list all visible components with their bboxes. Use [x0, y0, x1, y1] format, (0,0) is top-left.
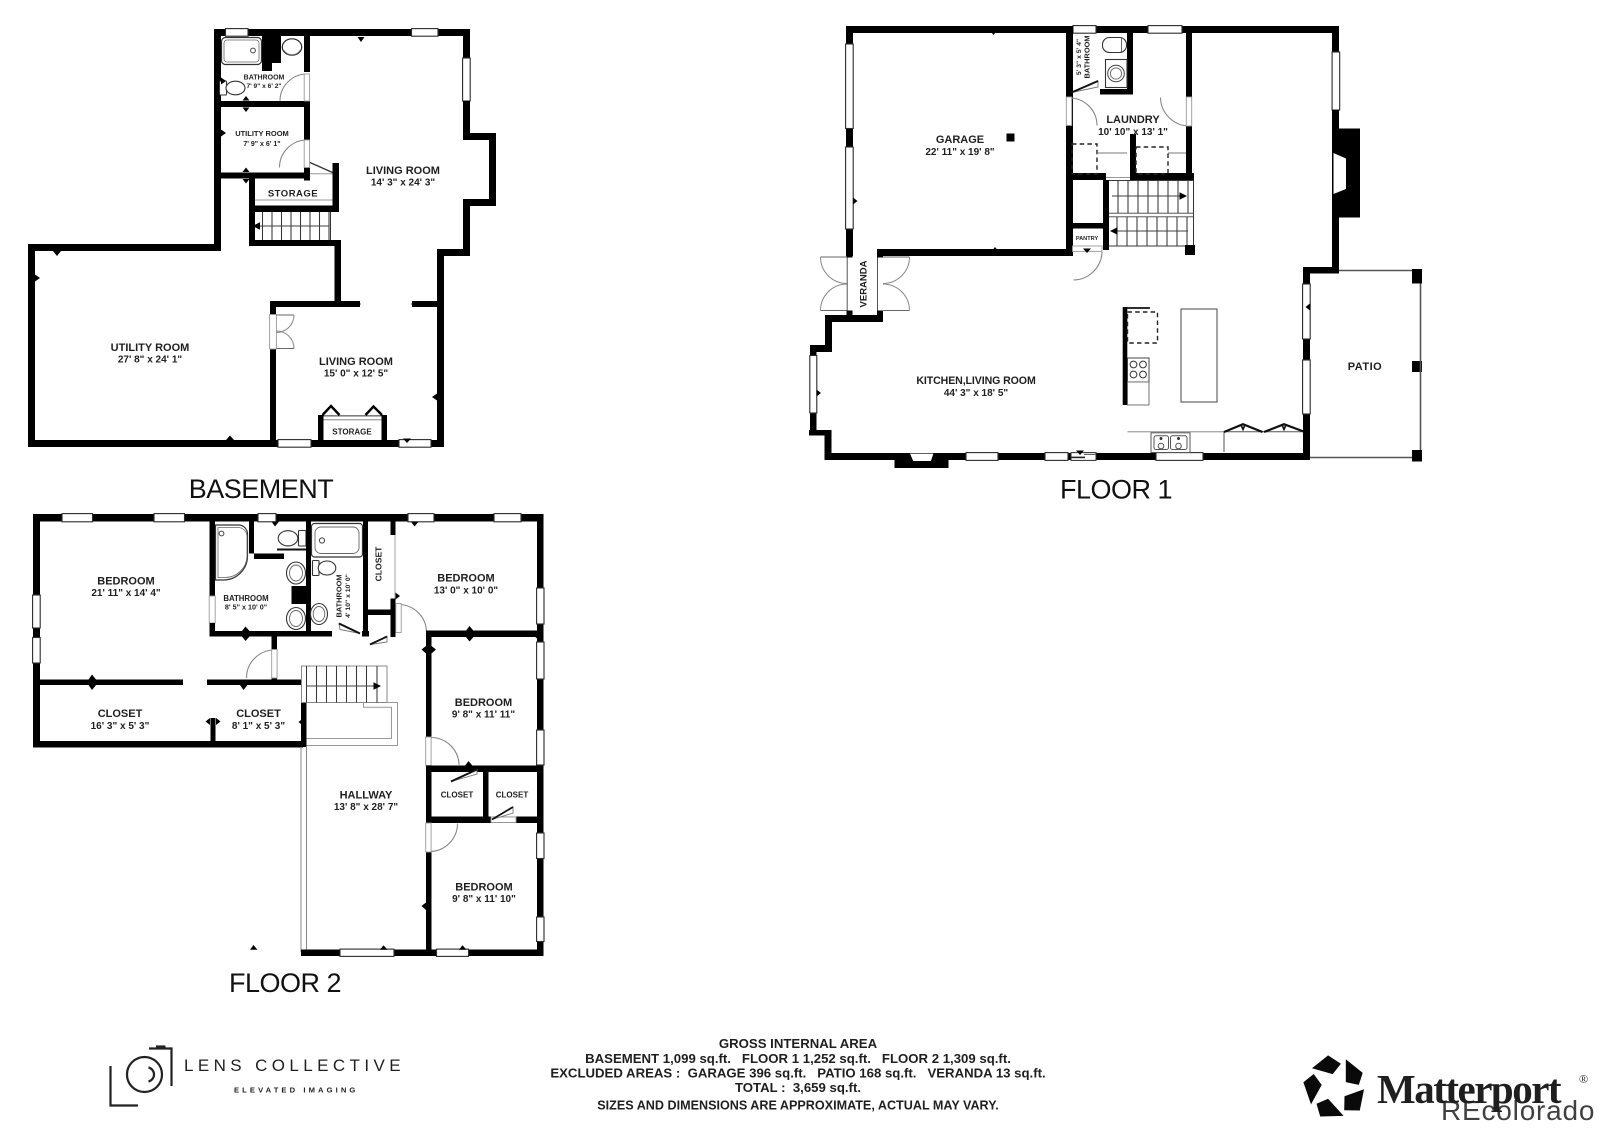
svg-text:8' 5" x 10' 0": 8' 5" x 10' 0" — [225, 603, 267, 612]
svg-text:GARAGE: GARAGE — [936, 134, 984, 146]
svg-text:21' 11" x 14' 4": 21' 11" x 14' 4" — [91, 588, 161, 599]
svg-text:8' 1" x 5' 3": 8' 1" x 5' 3" — [232, 721, 285, 732]
svg-text:16' 3" x 5' 3": 16' 3" x 5' 3" — [91, 721, 150, 732]
svg-text:10' 10" x 13' 1": 10' 10" x 13' 1" — [1098, 127, 1168, 138]
svg-text:5' 3" x 5' 4": 5' 3" x 5' 4" — [1076, 39, 1083, 75]
svg-text:CLOSET: CLOSET — [98, 708, 143, 720]
svg-text:CLOSET: CLOSET — [496, 791, 529, 800]
svg-text:KITCHEN,LIVING ROOM: KITCHEN,LIVING ROOM — [916, 375, 1036, 387]
svg-text:9' 8" x 11' 10": 9' 8" x 11' 10" — [452, 894, 516, 905]
svg-text:15' 0" x 12' 5": 15' 0" x 12' 5" — [324, 369, 389, 380]
svg-text:44' 3" x 18' 5": 44' 3" x 18' 5" — [944, 388, 1009, 399]
svg-text:®: ® — [1579, 1072, 1588, 1086]
svg-text:BEDROOM: BEDROOM — [97, 576, 154, 588]
svg-text:FLOOR 2: FLOOR 2 — [229, 968, 341, 998]
svg-text:9' 8" x 11' 11": 9' 8" x 11' 11" — [452, 710, 515, 721]
svg-text:LENS COLLECTIVE: LENS COLLECTIVE — [184, 1056, 405, 1075]
svg-text:LIVING ROOM: LIVING ROOM — [319, 356, 393, 368]
svg-text:SIZES AND DIMENSIONS ARE APPRO: SIZES AND DIMENSIONS ARE APPROXIMATE, AC… — [597, 1099, 998, 1113]
svg-text:STORAGE: STORAGE — [332, 428, 372, 437]
svg-text:BASEMENT 1,099 sq.ft. FLOOR: BASEMENT 1,099 sq.ft. FLOOR 1 1,252 sq.f… — [585, 1051, 1011, 1066]
svg-text:13' 0" x 10' 0": 13' 0" x 10' 0" — [434, 586, 499, 597]
svg-text:HALLWAY: HALLWAY — [340, 790, 393, 802]
svg-text:CLOSET: CLOSET — [441, 791, 474, 800]
svg-text:LIVING ROOM: LIVING ROOM — [366, 165, 440, 177]
svg-text:27' 8" x 24' 1": 27' 8" x 24' 1" — [118, 355, 183, 366]
svg-text:22' 11" x 19' 8": 22' 11" x 19' 8" — [925, 147, 995, 158]
svg-text:7' 9" x 6' 1": 7' 9" x 6' 1" — [243, 141, 280, 148]
svg-text:VERANDA: VERANDA — [859, 260, 870, 307]
svg-text:LAUNDRY: LAUNDRY — [1106, 114, 1160, 126]
svg-text:BEDROOM: BEDROOM — [455, 697, 512, 709]
svg-text:14' 3" x 24' 3": 14' 3" x 24' 3" — [371, 178, 436, 189]
svg-text:13' 8" x 28' 7": 13' 8" x 28' 7" — [334, 802, 399, 813]
svg-text:GROSS INTERNAL AREA: GROSS INTERNAL AREA — [719, 1036, 878, 1051]
svg-text:BATHROOM: BATHROOM — [1083, 36, 1092, 79]
svg-text:STORAGE: STORAGE — [268, 189, 318, 200]
svg-text:CLOSET: CLOSET — [374, 546, 384, 582]
svg-text:CLOSET: CLOSET — [236, 708, 281, 720]
svg-text:BEDROOM: BEDROOM — [437, 573, 494, 585]
svg-text:REcolorado: REcolorado — [1441, 1095, 1595, 1126]
svg-text:ELEVATED IMAGING: ELEVATED IMAGING — [234, 1086, 358, 1095]
svg-text:PATIO: PATIO — [1348, 361, 1382, 373]
svg-text:BATHROOM: BATHROOM — [335, 575, 344, 618]
svg-text:UTILITY ROOM: UTILITY ROOM — [111, 342, 190, 354]
svg-text:TOTAL : 3,659 sq.ft.: TOTAL : 3,659 sq.ft. — [735, 1080, 861, 1095]
svg-text:4' 10" x 10' 0": 4' 10" x 10' 0" — [345, 574, 352, 618]
svg-text:UTILITY ROOM: UTILITY ROOM — [235, 129, 289, 138]
svg-text:BEDROOM: BEDROOM — [455, 882, 512, 894]
svg-text:BATHROOM: BATHROOM — [244, 75, 285, 82]
svg-text:PANTRY: PANTRY — [1076, 236, 1099, 242]
svg-text:BASEMENT: BASEMENT — [189, 474, 334, 504]
svg-text:7' 9" x 6' 2": 7' 9" x 6' 2" — [246, 83, 281, 90]
svg-text:FLOOR 1: FLOOR 1 — [1060, 475, 1172, 505]
svg-text:EXCLUDED AREAS : GARAGE 396 s: EXCLUDED AREAS : GARAGE 396 sq.ft. PATIO… — [550, 1066, 1045, 1081]
